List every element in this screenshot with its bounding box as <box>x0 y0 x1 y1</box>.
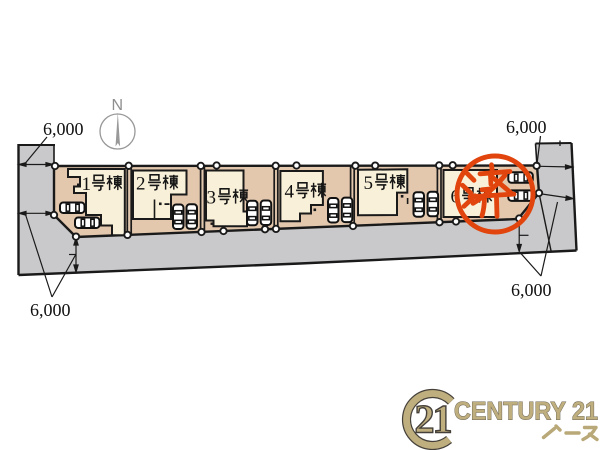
svg-text:6,000: 6,000 <box>30 300 71 320</box>
svg-text:5: 5 <box>364 173 374 194</box>
svg-text:3: 3 <box>207 188 217 209</box>
svg-text:21: 21 <box>415 397 451 442</box>
svg-text:6,000: 6,000 <box>43 119 84 139</box>
svg-text:6,000: 6,000 <box>506 117 547 137</box>
svg-text:N: N <box>112 97 124 114</box>
svg-text:4: 4 <box>285 182 295 203</box>
svg-text:6,000: 6,000 <box>511 280 552 300</box>
svg-text:CENTURY 21: CENTURY 21 <box>454 398 598 426</box>
svg-text:1: 1 <box>82 174 92 195</box>
svg-text:2: 2 <box>136 174 146 195</box>
